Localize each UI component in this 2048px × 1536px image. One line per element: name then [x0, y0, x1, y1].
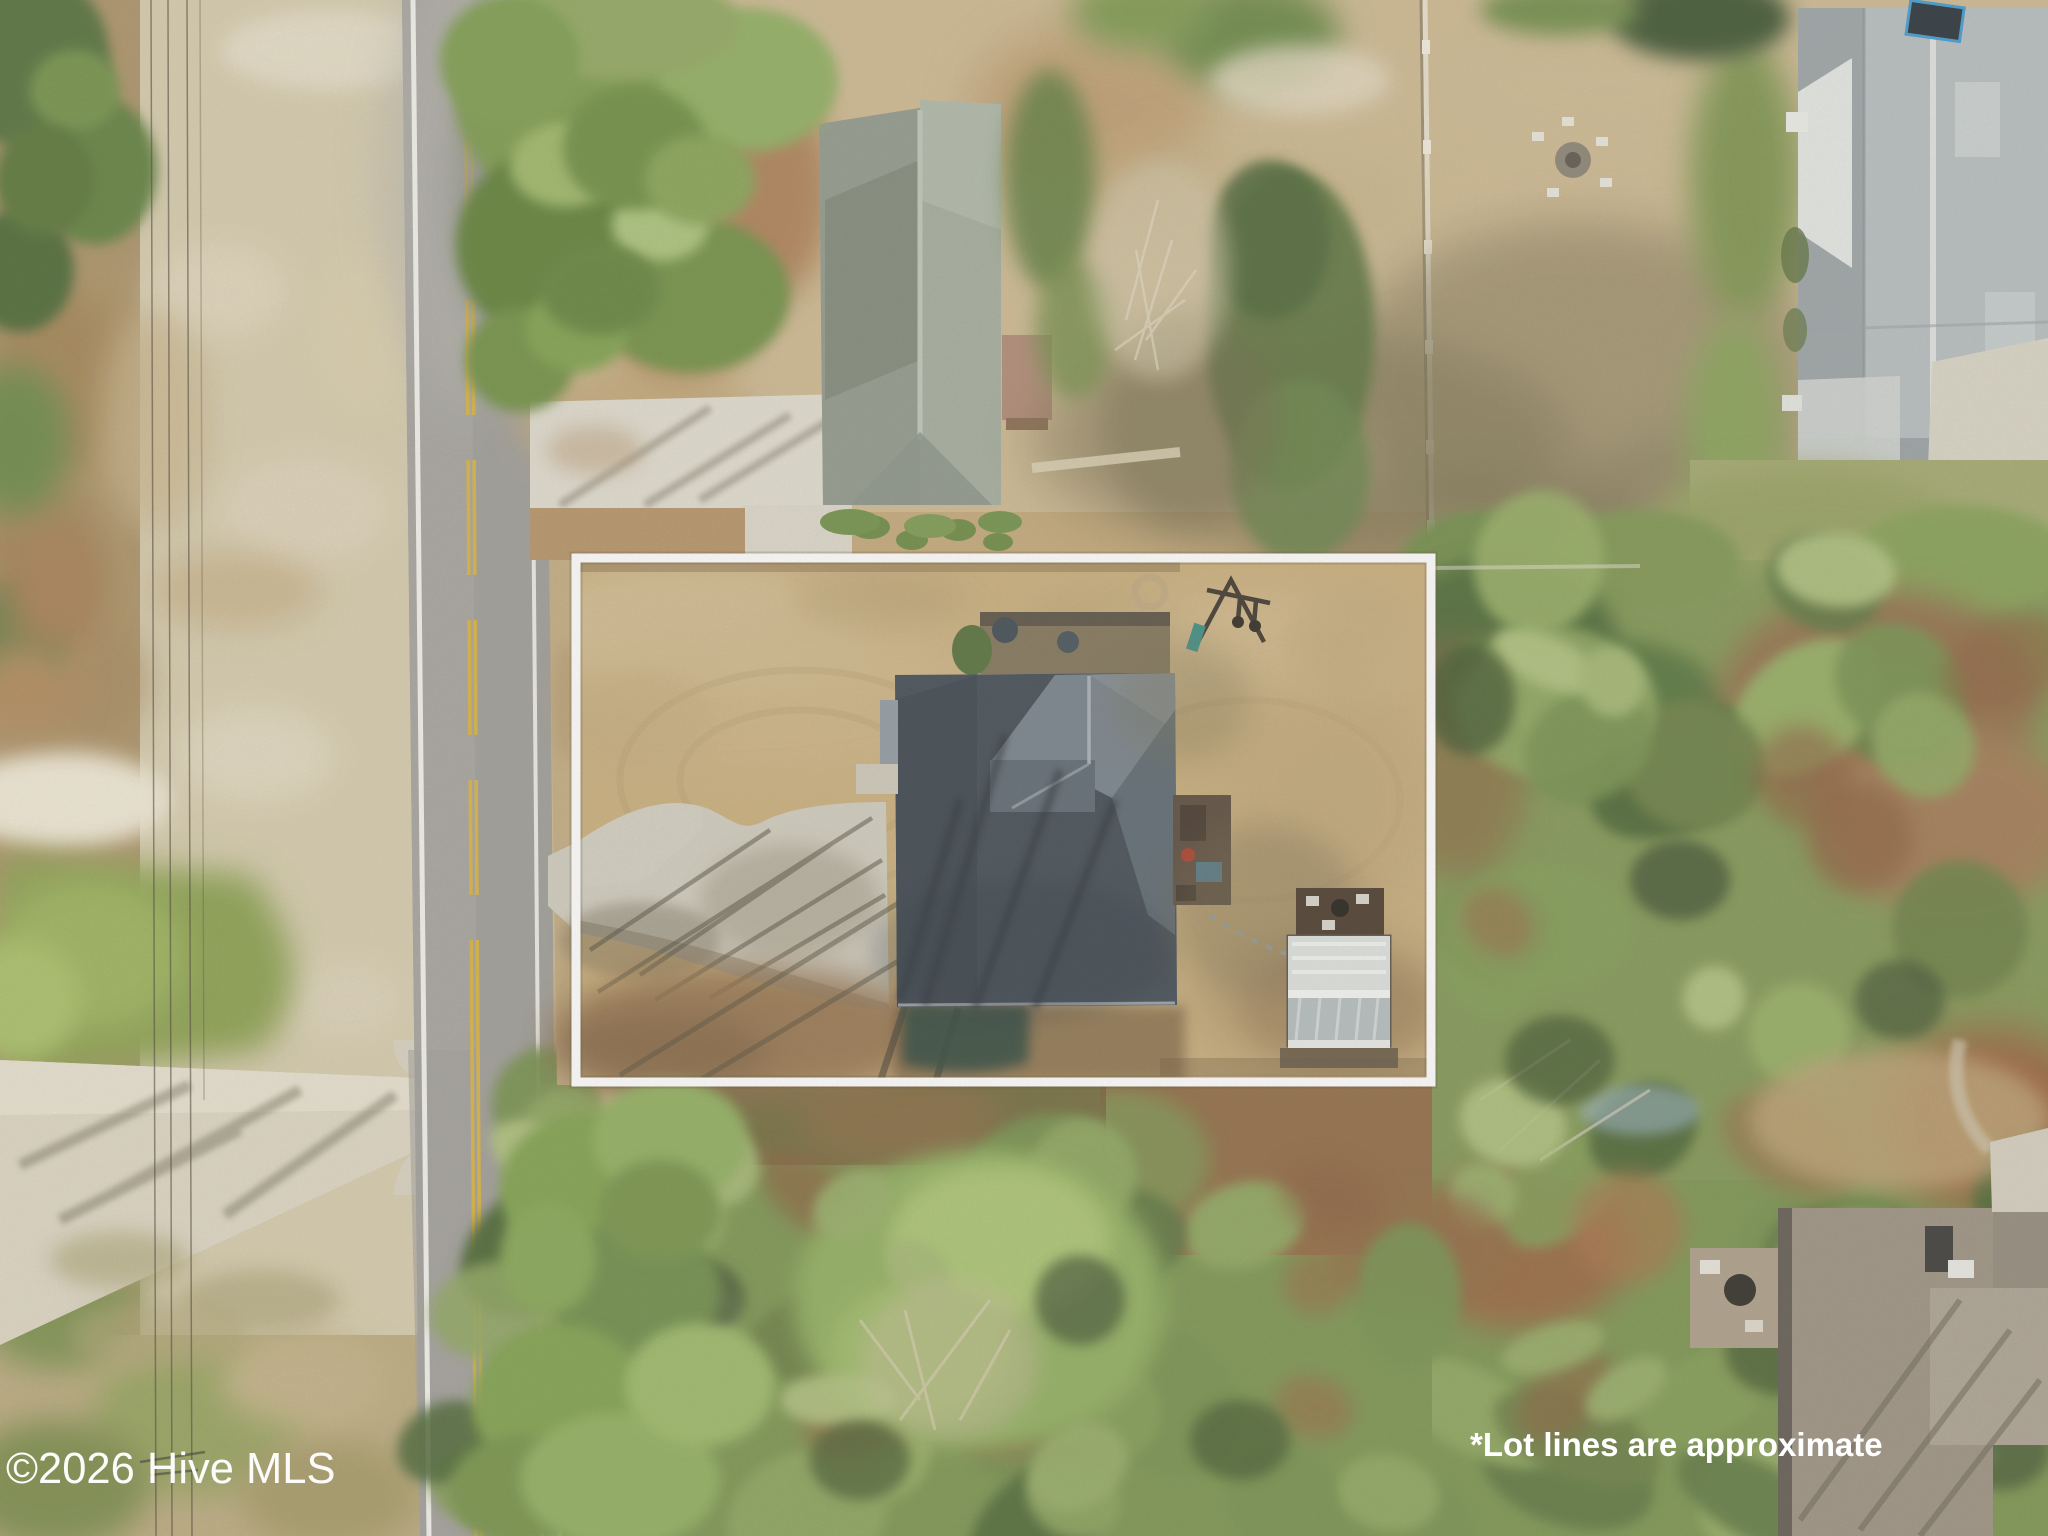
svg-text:*Lot lines are approximate: *Lot lines are approximate — [1470, 1426, 1883, 1463]
svg-text:©2026 Hive MLS: ©2026 Hive MLS — [6, 1445, 335, 1493]
